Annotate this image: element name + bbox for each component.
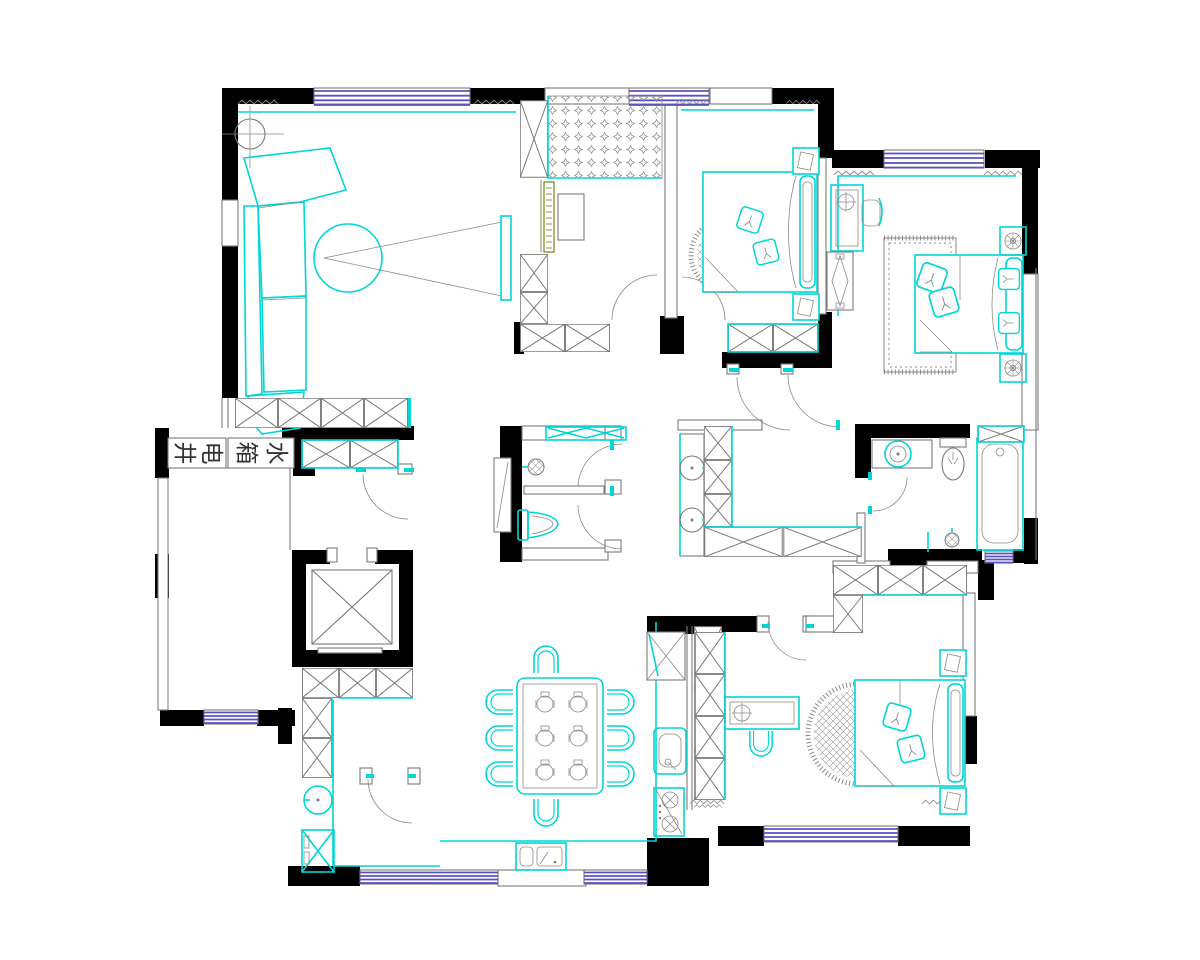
mirror-cabinet [494, 458, 511, 532]
bedroom-3 [695, 565, 967, 814]
nightstand [940, 788, 966, 814]
window-dining [584, 870, 647, 884]
door-master-bedroom [788, 375, 840, 427]
kitchen-sink [654, 728, 686, 774]
top-wardrobe-row [833, 565, 967, 632]
bay-window-cabinet [728, 324, 818, 352]
study-desk [558, 194, 584, 240]
window-stair-lobby [204, 710, 258, 724]
dining-chairs [486, 646, 634, 826]
window-master-bedroom [884, 150, 984, 168]
double-bed [703, 172, 817, 292]
floor-plan-page: 井 电 箱 水 [0, 0, 1200, 960]
tv [501, 216, 511, 300]
window-foyer [360, 870, 498, 884]
window-living [314, 88, 470, 105]
washing-machine [302, 830, 334, 872]
wardrobe [827, 252, 853, 310]
bathtub [977, 438, 1023, 550]
nightstand [793, 148, 819, 174]
side-wardrobe-column [695, 632, 725, 800]
master-bathroom [872, 426, 1024, 552]
toilet [518, 510, 558, 540]
electrical-shaft-char1: 井 [171, 442, 197, 465]
door-master-bath [873, 477, 907, 511]
vanity-counter [872, 440, 932, 468]
wash-basin [304, 786, 332, 814]
door-foyer-wc [368, 779, 412, 823]
balcony-sink-unit [516, 843, 566, 870]
shaft-labels: 井 电 箱 水 [168, 438, 294, 468]
living-cabinet-row [235, 398, 411, 428]
shower-drain [928, 528, 959, 552]
tv-board [541, 180, 554, 252]
elevator-door [318, 648, 382, 653]
place-setting [536, 726, 554, 746]
partition-wall [524, 486, 604, 494]
water-tank-char2: 水 [263, 442, 289, 465]
double-bed [915, 255, 1023, 353]
corner-cabinet [647, 632, 685, 680]
dining-table [517, 678, 603, 794]
double-bed [855, 680, 965, 786]
electrical-shaft-char2: 电 [198, 442, 224, 465]
place-settings [536, 692, 587, 780]
sofa [244, 148, 346, 434]
place-setting [536, 692, 554, 712]
toilet [940, 438, 966, 480]
shoe-cabinet-row [302, 668, 413, 778]
place-setting [569, 726, 587, 746]
desk [725, 697, 799, 729]
floor-plan-drawing: 井 电 箱 水 [0, 0, 1200, 960]
place-setting [569, 692, 587, 712]
desk-chair [862, 198, 882, 226]
hall-cabinet [302, 440, 398, 468]
water-tank-char1: 箱 [233, 442, 259, 465]
wash-basin [885, 441, 911, 467]
door-study [612, 275, 657, 320]
tv-viewing-cone [324, 216, 511, 300]
towel-cabinet [978, 426, 1024, 442]
master-desk [831, 185, 863, 251]
window-master-bath [985, 551, 1013, 563]
desk-chair [750, 731, 772, 756]
nightstand [793, 294, 819, 320]
wardrobe-column [520, 101, 547, 177]
place-setting [536, 760, 554, 780]
door-living-to-foyer [363, 474, 408, 519]
living-room [222, 106, 516, 468]
pantry-cabinets [680, 426, 862, 557]
place-setting [569, 760, 587, 780]
bedroom-2 [681, 110, 819, 352]
window-bedroom3 [764, 826, 898, 842]
shower-drain [522, 459, 544, 475]
elevator [312, 570, 392, 653]
study-room [520, 96, 662, 352]
door-bedroom3 [768, 622, 806, 660]
gas-stove [654, 788, 684, 836]
nightstand [940, 650, 966, 676]
tatami-bed [548, 96, 662, 178]
master-bedroom [827, 176, 1026, 382]
study-cabinet-row [520, 324, 609, 351]
foyer [302, 668, 413, 872]
